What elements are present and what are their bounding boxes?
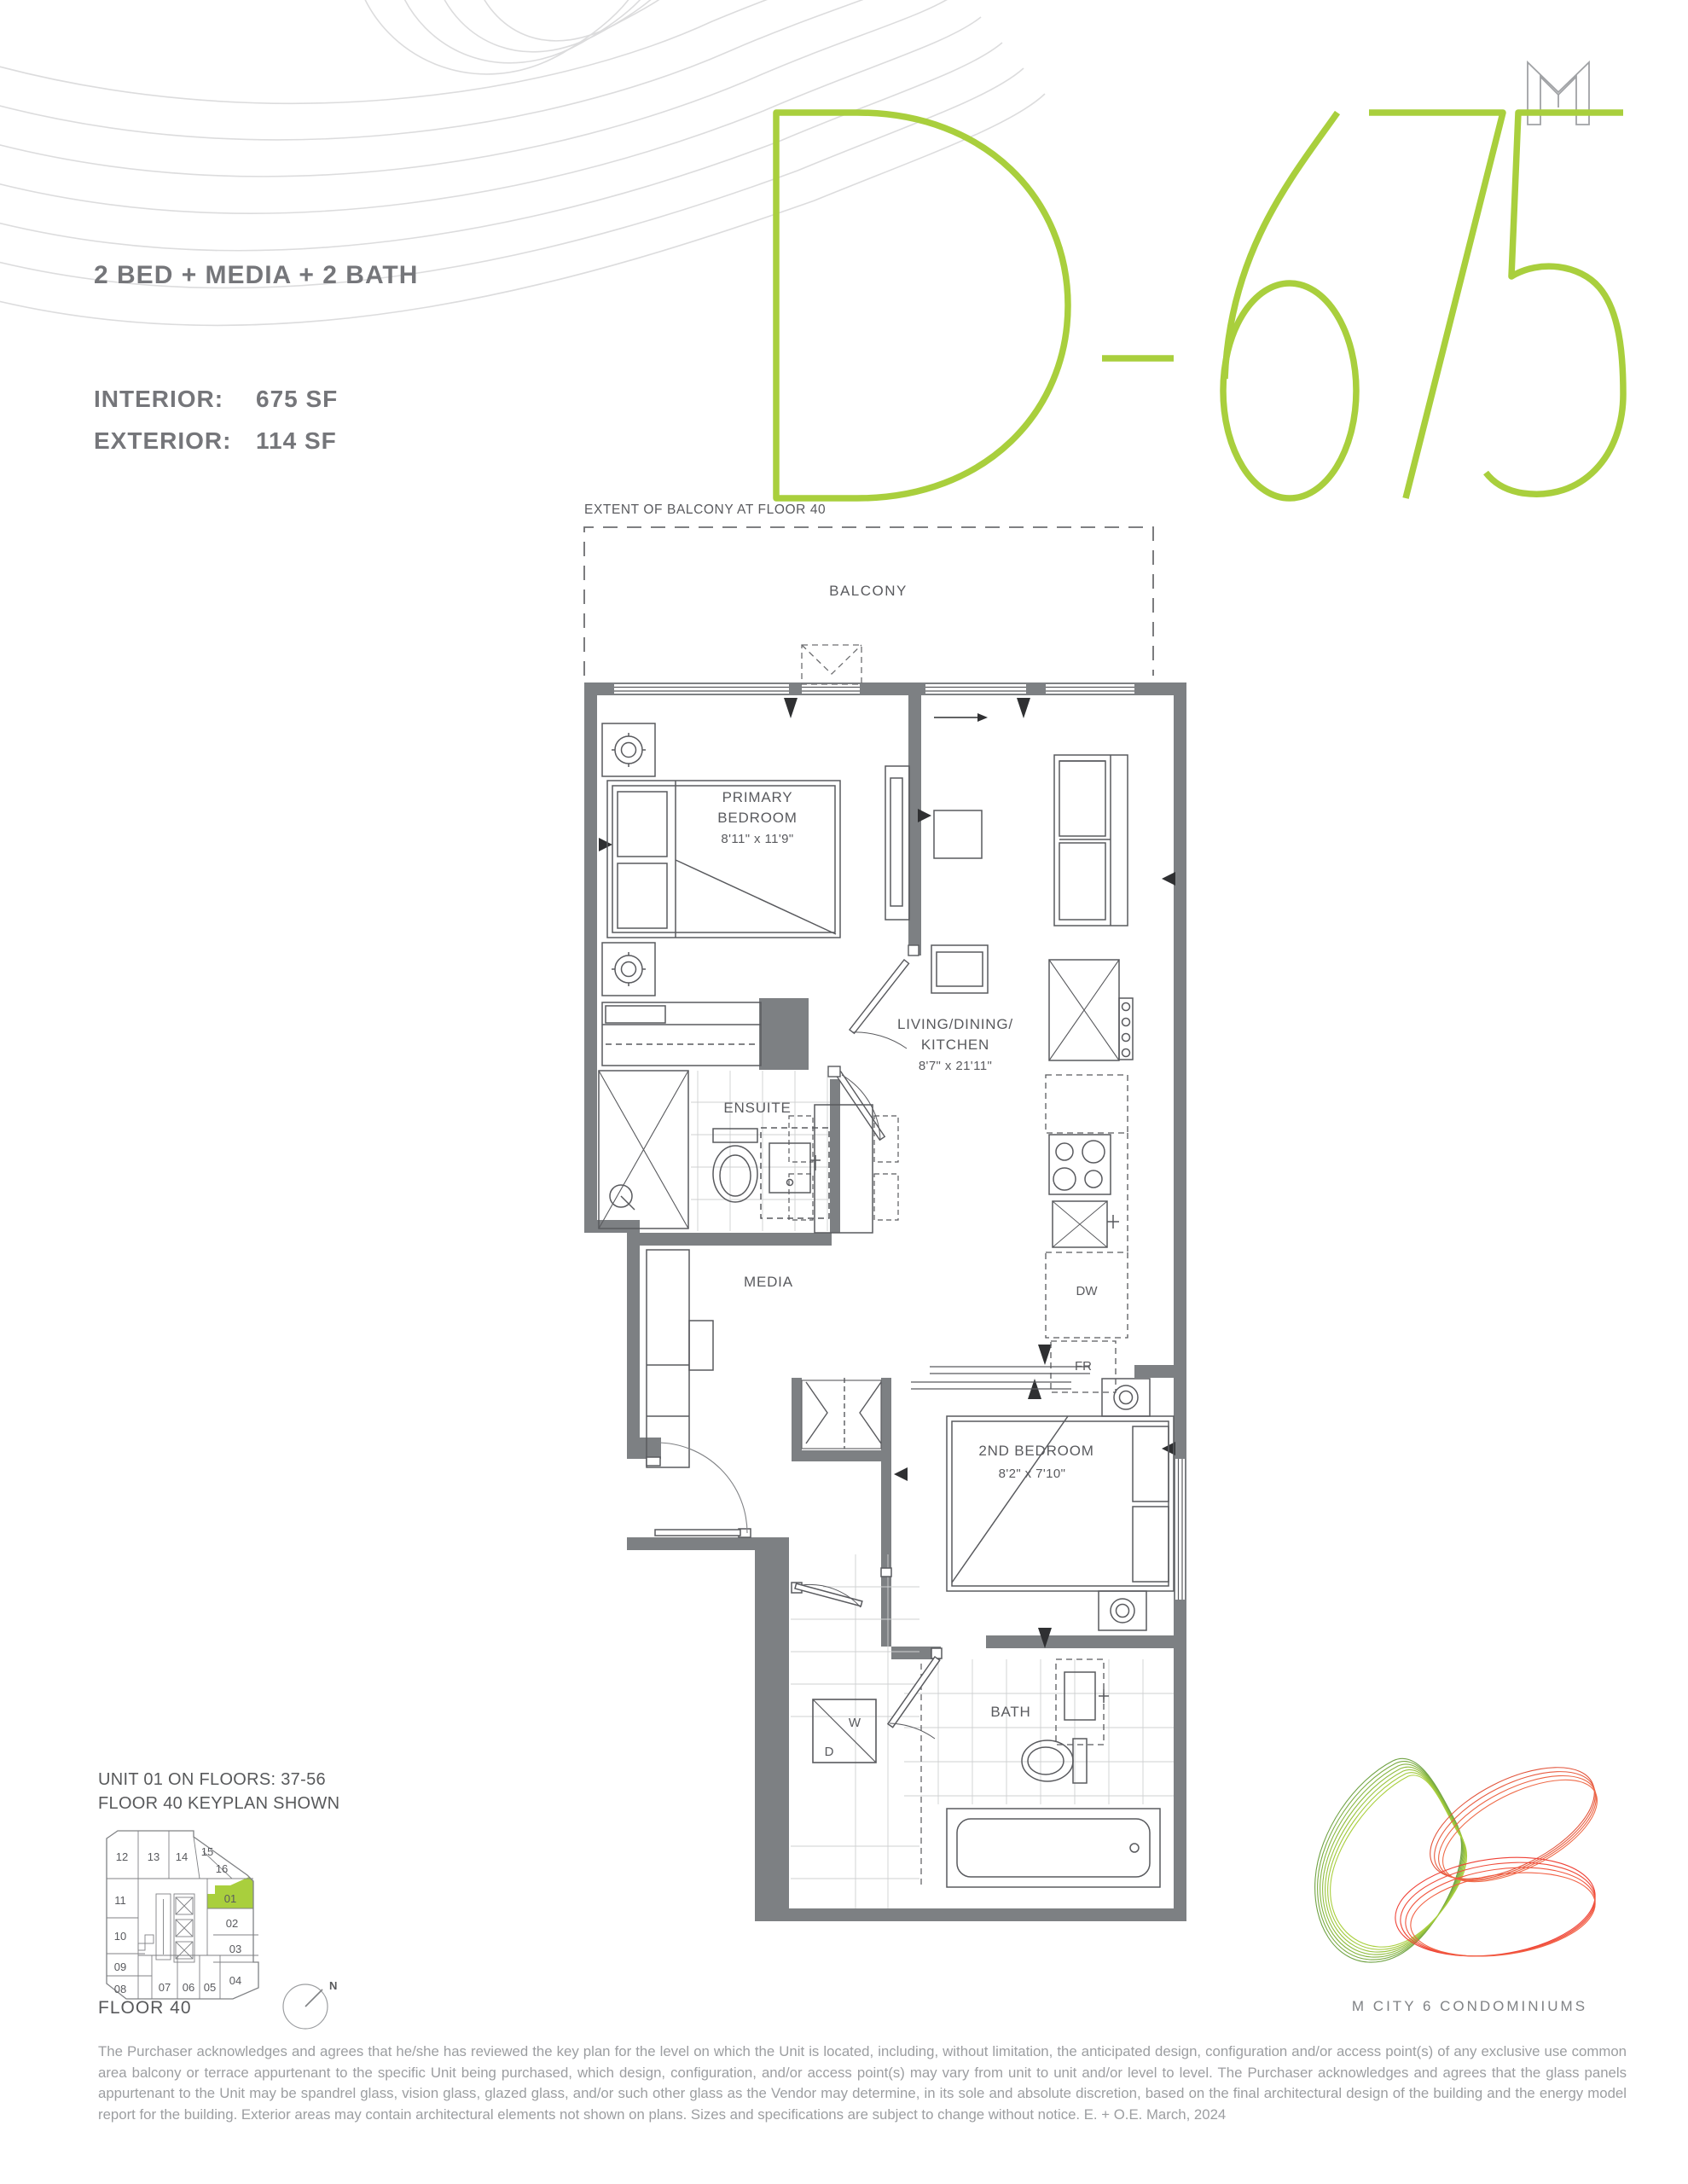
living-furniture bbox=[885, 755, 1128, 993]
logo-green-loops bbox=[1315, 1758, 1467, 1962]
washer-label: W bbox=[849, 1716, 861, 1730]
balcony-extent-label: EXTENT OF BALCONY AT FLOOR 40 bbox=[584, 502, 826, 517]
dining-set bbox=[789, 1105, 898, 1233]
floor-plan: EXTENT OF BALCONY AT FLOOR 40 BALCONY bbox=[546, 478, 1228, 1928]
keyplan-unit-07: 07 bbox=[159, 1981, 171, 1994]
ensuite-label: ENSUITE bbox=[723, 1100, 791, 1116]
media-label: MEDIA bbox=[744, 1274, 793, 1290]
second-bedroom-label: 2ND BEDROOM bbox=[978, 1443, 1093, 1459]
keyplan-unit-10: 10 bbox=[114, 1930, 126, 1943]
keyplan-unit-16: 16 bbox=[216, 1862, 228, 1875]
dryer-label: D bbox=[825, 1745, 834, 1759]
hall-closet bbox=[802, 1378, 881, 1449]
interior-label: INTERIOR: bbox=[94, 386, 256, 413]
media-furniture bbox=[647, 1250, 713, 1467]
balcony-outline bbox=[584, 527, 1153, 676]
slider-arrow-icon bbox=[934, 713, 988, 722]
unit-code-art bbox=[768, 104, 1629, 522]
bath-fixtures bbox=[791, 1554, 1174, 1908]
keyplan-floors-note: UNIT 01 ON FLOORS: 37-56 bbox=[98, 1770, 326, 1790]
second-bedroom-furniture bbox=[947, 1379, 1174, 1630]
keyplan-unit-08: 08 bbox=[114, 1983, 126, 1995]
keyplan-shown-note: FLOOR 40 KEYPLAN SHOWN bbox=[98, 1794, 339, 1814]
keyplan-unit-04: 04 bbox=[229, 1974, 241, 1987]
keyplan-floor-label: FLOOR 40 bbox=[98, 1998, 192, 2018]
interior-value: 675 SF bbox=[256, 386, 338, 413]
keyplan-unit-09: 09 bbox=[114, 1960, 126, 1973]
entry-door bbox=[647, 1443, 751, 1537]
brand-caption: M CITY 6 CONDOMINIUMS bbox=[1295, 1998, 1644, 2015]
keyplan-unit-12: 12 bbox=[116, 1850, 128, 1863]
keyplan-unit-05: 05 bbox=[204, 1981, 216, 1994]
keyplan-unit-11: 11 bbox=[114, 1894, 126, 1907]
exterior-area-row: EXTERIOR: 114 SF bbox=[94, 427, 338, 455]
second-bedroom-dims: 8'2" x 7'10" bbox=[999, 1467, 1066, 1481]
exterior-label: EXTERIOR: bbox=[94, 427, 256, 455]
balcony-label: BALCONY bbox=[829, 583, 908, 599]
mcity-logo bbox=[1295, 1742, 1644, 1998]
keyplan-unit-13: 13 bbox=[148, 1850, 160, 1863]
plan-type-heading: 2 BED + MEDIA + 2 BATH bbox=[94, 261, 418, 290]
primary-bedroom-label-2: BEDROOM bbox=[717, 810, 797, 826]
living-label-1: LIVING/DINING/ bbox=[897, 1016, 1013, 1032]
balcony-door bbox=[802, 645, 861, 684]
primary-bedroom-label-1: PRIMARY bbox=[722, 789, 793, 805]
keyplan-unit-15: 15 bbox=[201, 1845, 213, 1858]
compass-icon: N bbox=[283, 1979, 337, 2029]
interior-doors bbox=[828, 945, 919, 1140]
keyplan-unit-14: 14 bbox=[176, 1850, 188, 1863]
floorplan-page: { "header": { "spec": "2 BED + MEDIA + 2… bbox=[0, 0, 1688, 2184]
exterior-value: 114 SF bbox=[256, 427, 337, 455]
keyplan-unit-06: 06 bbox=[183, 1981, 194, 1994]
keyplan-unit-01: 01 bbox=[224, 1892, 236, 1905]
legal-disclaimer: The Purchaser acknowledges and agrees th… bbox=[98, 2042, 1627, 2126]
dishwasher-label: DW bbox=[1076, 1284, 1099, 1298]
ensuite-fixtures bbox=[599, 1071, 830, 1231]
area-summary: INTERIOR: 675 SF EXTERIOR: 114 SF bbox=[94, 386, 338, 469]
keyplan-unit-03: 03 bbox=[229, 1943, 241, 1955]
fridge-label: FR bbox=[1075, 1359, 1092, 1374]
primary-bedroom-dims: 8'11" x 11'9" bbox=[721, 832, 793, 846]
compass-north-label: N bbox=[329, 1979, 337, 1992]
keyplan-unit-02: 02 bbox=[226, 1917, 238, 1930]
living-dims: 8'7" x 21'11" bbox=[919, 1059, 992, 1073]
interior-area-row: INTERIOR: 675 SF bbox=[94, 386, 338, 413]
living-label-2: KITCHEN bbox=[921, 1037, 989, 1053]
bath-label: BATH bbox=[990, 1704, 1030, 1720]
